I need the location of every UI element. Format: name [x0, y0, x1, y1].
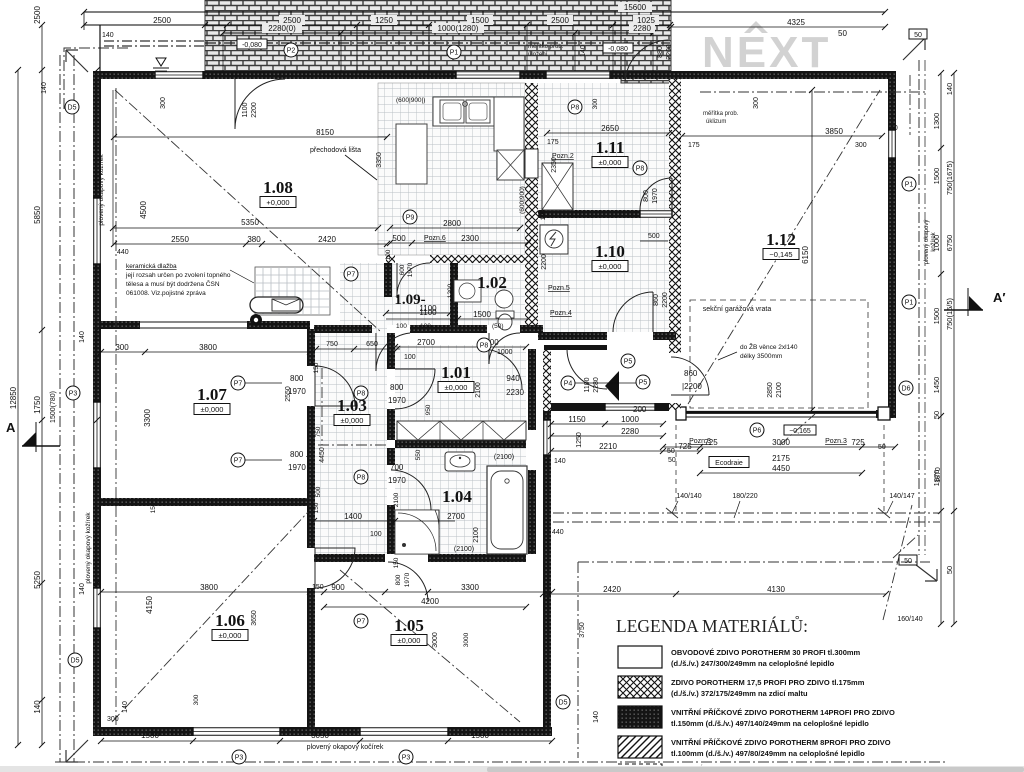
- svg-text:3750: 3750: [579, 622, 586, 638]
- svg-text:1200: 1200: [447, 283, 454, 298]
- svg-text:3300: 3300: [143, 409, 152, 427]
- svg-text:P3: P3: [235, 754, 244, 761]
- svg-text:725: 725: [851, 438, 865, 447]
- svg-text:140/140: 140/140: [676, 493, 701, 500]
- svg-text:50: 50: [914, 32, 922, 39]
- svg-text:2280(0): 2280(0): [268, 24, 296, 33]
- svg-text:1.02: 1.02: [477, 273, 507, 292]
- svg-text:P5: P5: [624, 358, 633, 365]
- svg-text:1000: 1000: [932, 235, 941, 252]
- svg-text:1000(1280): 1000(1280): [438, 24, 479, 33]
- svg-text:50: 50: [667, 448, 675, 455]
- svg-text:měřítka prob.: měřítka prob.: [703, 111, 739, 117]
- svg-text:1100: 1100: [242, 102, 249, 117]
- svg-text:Pozn.3: Pozn.3: [825, 438, 847, 445]
- svg-text:D5: D5: [71, 657, 80, 664]
- svg-text:2100: 2100: [473, 527, 480, 543]
- svg-text:3800: 3800: [200, 583, 218, 592]
- svg-text:1100: 1100: [584, 377, 591, 392]
- svg-text:tl.150mm (d./š./v.) 497/140/24: tl.150mm (d./š./v.) 497/140/249mm na cel…: [671, 719, 869, 728]
- svg-text:2175: 2175: [772, 454, 790, 463]
- svg-text:800: 800: [290, 374, 304, 383]
- svg-text:±0,000: ±0,000: [445, 383, 468, 392]
- svg-text:4500: 4500: [139, 201, 148, 219]
- svg-text:140: 140: [79, 583, 86, 595]
- svg-text:(600|900|): (600|900|): [396, 97, 425, 104]
- svg-text:100: 100: [385, 249, 392, 260]
- svg-text:2850: 2850: [767, 382, 774, 398]
- svg-text:1500: 1500: [471, 731, 489, 740]
- svg-text:A′: A′: [993, 290, 1006, 305]
- svg-text:140: 140: [79, 331, 86, 343]
- svg-text:P8: P8: [357, 390, 366, 397]
- svg-text:2300: 2300: [461, 234, 479, 243]
- svg-text:1.04: 1.04: [442, 487, 472, 506]
- svg-text:P7: P7: [347, 271, 356, 278]
- svg-text:±0,000: ±0,000: [599, 262, 622, 271]
- svg-text:940: 940: [506, 374, 520, 383]
- svg-text:1000: 1000: [497, 349, 513, 356]
- svg-text:2550: 2550: [171, 235, 189, 244]
- svg-text:délky 3500mm: délky 3500mm: [740, 353, 782, 360]
- svg-text:440: 440: [552, 529, 564, 536]
- svg-text:6150: 6150: [801, 246, 810, 264]
- svg-text:3800: 3800: [199, 343, 217, 352]
- svg-text:|2200: |2200: [682, 382, 702, 391]
- svg-text:(d./š./v.) 372/175/249mm na zd: (d./š./v.) 372/175/249mm na zdicí maltu: [671, 689, 808, 698]
- svg-text:1970: 1970: [404, 572, 411, 587]
- svg-text:přechodová lišta: přechodová lišta: [310, 147, 361, 154]
- svg-text:2200: 2200: [662, 292, 669, 308]
- svg-text:1000: 1000: [621, 415, 639, 424]
- svg-text:50: 50: [932, 411, 941, 419]
- svg-text:3000: 3000: [772, 438, 790, 447]
- svg-text:3650: 3650: [251, 610, 258, 626]
- svg-text:Pozn.5: Pozn.5: [548, 285, 570, 292]
- svg-text:1100: 1100: [419, 304, 437, 313]
- svg-text:−0,165: −0,165: [789, 428, 811, 435]
- svg-text:140: 140: [122, 701, 129, 713]
- svg-text:3350: 3350: [376, 152, 383, 168]
- svg-text:2500: 2500: [153, 16, 171, 25]
- svg-text:061008. Viz.pojistné zpráva: 061008. Viz.pojistné zpráva: [126, 290, 206, 297]
- svg-text:860: 860: [653, 294, 660, 306]
- svg-text:15600: 15600: [624, 3, 647, 12]
- svg-text:5350: 5350: [241, 218, 259, 227]
- svg-text:50: 50: [668, 457, 676, 464]
- svg-text:300: 300: [193, 694, 200, 705]
- svg-text:2700: 2700: [447, 512, 465, 521]
- svg-text:140: 140: [593, 711, 600, 723]
- svg-text:1400: 1400: [344, 512, 362, 521]
- svg-text:750: 750: [315, 426, 322, 437]
- svg-text:±0,000: ±0,000: [341, 416, 364, 425]
- svg-text:D6: D6: [902, 385, 911, 392]
- svg-text:12850: 12850: [9, 386, 18, 409]
- svg-text:6750: 6750: [945, 235, 954, 252]
- svg-text:600: 600: [399, 264, 406, 275]
- svg-text:1250: 1250: [576, 432, 583, 448]
- svg-text:NEXT: NEXT: [702, 28, 831, 77]
- svg-text:1970: 1970: [652, 188, 659, 204]
- svg-text:-0,080: -0,080: [608, 46, 628, 53]
- svg-text:VNITŘNÍ PŘÍČKOVÉ ZDIVO POROTHE: VNITŘNÍ PŘÍČKOVÉ ZDIVO POROTHERM 8PROFI …: [671, 738, 891, 747]
- svg-text:VNITŘNÍ PŘÍČKOVÉ ZDIVO POROTHE: VNITŘNÍ PŘÍČKOVÉ ZDIVO POROTHERM 14PROFI…: [671, 708, 895, 717]
- svg-text:P8: P8: [480, 342, 489, 349]
- svg-text:100: 100: [396, 323, 407, 330]
- svg-text:2280: 2280: [621, 427, 639, 436]
- svg-text:800 .: 800 .: [290, 450, 308, 459]
- svg-text:4150: 4150: [145, 596, 154, 614]
- svg-text:+0,000: +0,000: [266, 198, 289, 207]
- svg-text:1970: 1970: [388, 396, 406, 405]
- svg-text:OBVODOVÉ ZDIVO POROTHERM 30 PR: OBVODOVÉ ZDIVO POROTHERM 30 PROFI tl.300…: [671, 648, 861, 657]
- svg-text:950: 950: [425, 404, 432, 415]
- svg-text:1.01: 1.01: [441, 363, 471, 382]
- svg-text:A: A: [6, 420, 16, 435]
- svg-text:100: 100: [404, 354, 416, 361]
- svg-text:úklizum: úklizum: [706, 119, 726, 125]
- svg-text:1300: 1300: [932, 113, 941, 130]
- svg-text:175: 175: [688, 142, 700, 149]
- svg-text:300: 300: [592, 98, 599, 109]
- svg-text:P7: P7: [234, 380, 243, 387]
- svg-text:150: 150: [393, 557, 400, 568]
- svg-text:(600|900): (600|900): [519, 186, 526, 214]
- svg-text:2500: 2500: [551, 16, 569, 25]
- svg-text:2280: 2280: [593, 377, 600, 393]
- svg-text:175: 175: [547, 139, 559, 146]
- svg-text:4130: 4130: [767, 585, 785, 594]
- svg-text:1250: 1250: [375, 16, 393, 25]
- svg-text:P8: P8: [636, 165, 645, 172]
- svg-text:1500: 1500: [932, 308, 941, 325]
- svg-text:1.05: 1.05: [394, 616, 424, 635]
- svg-text:140: 140: [102, 32, 114, 39]
- svg-text:300: 300: [753, 97, 760, 109]
- svg-text:100: 100: [420, 323, 431, 330]
- svg-text:300: 300: [115, 343, 129, 352]
- svg-text:1970: 1970: [288, 463, 306, 472]
- svg-text:50: 50: [878, 444, 886, 451]
- svg-text:750: 750: [326, 341, 338, 348]
- svg-text:50: 50: [904, 558, 912, 565]
- svg-text:3300: 3300: [461, 583, 479, 592]
- svg-text:1.12: 1.12: [766, 230, 796, 249]
- svg-text:860: 860: [684, 369, 698, 378]
- svg-text:měřítko prob.: měřítko prob.: [528, 44, 564, 50]
- svg-text:±0,000: ±0,000: [219, 631, 242, 640]
- svg-text:její rozsah určen po zvolení t: její rozsah určen po zvolení topného: [125, 272, 231, 279]
- svg-text:500: 500: [648, 233, 660, 240]
- svg-text:3050: 3050: [311, 731, 329, 740]
- svg-text:(d./š./v.) 247/300/249mm na ce: (d./š./v.) 247/300/249mm na celoplošné l…: [671, 659, 835, 668]
- svg-text:800: 800: [643, 190, 650, 202]
- svg-text:P1: P1: [905, 299, 914, 306]
- svg-text:1500: 1500: [141, 731, 159, 740]
- svg-text:2420: 2420: [603, 585, 621, 594]
- svg-text:800: 800: [395, 574, 402, 585]
- svg-text:500: 500: [392, 234, 406, 243]
- svg-text:4450: 4450: [772, 464, 790, 473]
- svg-text:P3: P3: [402, 754, 411, 761]
- svg-text:300: 300: [855, 142, 867, 149]
- svg-text:2420: 2420: [318, 235, 336, 244]
- svg-text:1970: 1970: [388, 476, 406, 485]
- svg-text:±0,000: ±0,000: [201, 405, 224, 414]
- svg-text:keramická dlažba: keramická dlažba: [126, 263, 177, 270]
- svg-text:2650: 2650: [601, 124, 619, 133]
- svg-text:750(1675): 750(1675): [945, 160, 954, 195]
- svg-text:1970: 1970: [407, 262, 414, 277]
- svg-text:Pozn.4: Pozn.4: [550, 310, 572, 317]
- svg-text:4200: 4200: [421, 597, 439, 606]
- svg-text:5850: 5850: [33, 206, 42, 224]
- svg-text:do ŽB věnce 2xl140: do ŽB věnce 2xl140: [740, 342, 798, 351]
- svg-text:160/140: 160/140: [897, 616, 922, 623]
- svg-text:50: 50: [945, 566, 954, 574]
- svg-text:D5: D5: [68, 104, 77, 111]
- svg-text:P7: P7: [357, 618, 366, 625]
- svg-text:1500: 1500: [473, 310, 491, 319]
- svg-text:140/147: 140/147: [889, 493, 914, 500]
- svg-text:4325: 4325: [787, 18, 805, 27]
- svg-text:5250: 5250: [33, 571, 42, 589]
- svg-text:140: 140: [580, 45, 587, 57]
- svg-text:200: 200: [633, 405, 647, 414]
- svg-text:D5: D5: [559, 699, 568, 706]
- svg-text:tl.100mm (d./š./v.) 497/80/249: tl.100mm (d./š./v.) 497/80/249mm na celo…: [671, 749, 865, 758]
- svg-text:140: 140: [41, 82, 48, 94]
- svg-text:Pozn.3: Pozn.3: [689, 438, 711, 445]
- svg-text:300: 300: [107, 716, 119, 723]
- svg-text:2700: 2700: [417, 338, 435, 347]
- svg-text:150: 150: [312, 584, 324, 591]
- svg-text:-0,080: -0,080: [242, 42, 262, 49]
- svg-text:2230: 2230: [506, 388, 524, 397]
- svg-text:1750: 1750: [33, 396, 42, 414]
- svg-text:sekční garážová vrata: sekční garážová vrata: [703, 306, 772, 313]
- svg-text:Pozn.2: Pozn.2: [552, 153, 574, 160]
- svg-text:2100: 2100: [776, 382, 783, 398]
- svg-text:(50): (50): [492, 323, 504, 330]
- svg-text:440: 440: [117, 249, 129, 256]
- svg-text:1.10: 1.10: [595, 242, 625, 261]
- svg-text:50: 50: [890, 125, 898, 132]
- svg-text:2800: 2800: [443, 219, 461, 228]
- svg-text:P4: P4: [564, 380, 573, 387]
- svg-text:1.06: 1.06: [215, 611, 245, 630]
- svg-text:2200: 2200: [666, 44, 673, 60]
- svg-text:P1: P1: [450, 49, 459, 56]
- svg-text:P2: P2: [287, 47, 296, 54]
- svg-text:P5: P5: [639, 379, 648, 386]
- svg-text:plovený okapový: plovený okapový: [924, 220, 930, 265]
- svg-text:P6: P6: [753, 427, 762, 434]
- svg-text:750(16/5): 750(16/5): [945, 297, 954, 330]
- svg-text:150: 150: [313, 362, 320, 373]
- svg-text:100: 100: [540, 209, 547, 220]
- svg-text:LEGENDA MATERIÁLŮ:: LEGENDA MATERIÁLŮ:: [616, 616, 808, 636]
- svg-text:2280: 2280: [633, 24, 651, 33]
- svg-text:Pozn.6: Pozn.6: [424, 235, 446, 242]
- svg-text:1500: 1500: [932, 168, 941, 185]
- svg-text:3000: 3000: [463, 632, 470, 647]
- svg-text:1150: 1150: [568, 415, 586, 424]
- svg-text:plovený okapový kočírek: plovený okapový kočírek: [307, 744, 384, 751]
- svg-text:1.11: 1.11: [596, 138, 625, 157]
- svg-text:3000: 3000: [432, 632, 439, 648]
- svg-text:140: 140: [33, 700, 42, 714]
- svg-text:2100: 2100: [393, 492, 400, 507]
- svg-text:2200: 2200: [541, 254, 548, 270]
- svg-text:1870: 1870: [935, 467, 942, 483]
- svg-text:(2100): (2100): [494, 454, 514, 461]
- svg-text:140: 140: [554, 458, 566, 465]
- svg-text:300: 300: [160, 97, 167, 109]
- svg-text:2100: 2100: [475, 382, 482, 398]
- svg-text:180/220: 180/220: [732, 493, 757, 500]
- svg-text:380: 380: [247, 235, 261, 244]
- svg-text:150: 150: [150, 502, 157, 513]
- svg-text:2200: 2200: [251, 102, 258, 118]
- svg-text:ZDIVO POROTHERM 17,5 PROFI PRO: ZDIVO POROTHERM 17,5 PROFI PRO ZDIVO tl.…: [671, 678, 865, 687]
- svg-text:500: 500: [315, 486, 322, 497]
- svg-text:1500(780): 1500(780): [50, 391, 57, 423]
- svg-text:±0,000: ±0,000: [599, 158, 622, 167]
- svg-text:plovený okapový kožírek: plovený okapový kožírek: [98, 154, 105, 226]
- svg-text:1.08: 1.08: [263, 178, 293, 197]
- svg-text:P8: P8: [357, 474, 366, 481]
- svg-text:1.07: 1.07: [197, 385, 227, 404]
- svg-text:150: 150: [313, 502, 320, 513]
- svg-text:P3: P3: [69, 390, 78, 397]
- svg-text:P8: P8: [571, 104, 580, 111]
- svg-text:P1: P1: [905, 181, 914, 188]
- svg-text:650: 650: [366, 341, 378, 348]
- svg-text:800: 800: [390, 383, 404, 392]
- svg-text:plovený okapový kožírek: plovený okapový kožírek: [85, 512, 92, 584]
- svg-text:1450: 1450: [932, 377, 941, 394]
- svg-text:700: 700: [390, 463, 404, 472]
- svg-text:P7: P7: [234, 457, 243, 464]
- svg-text:2210: 2210: [599, 442, 617, 451]
- svg-text:1970: 1970: [288, 387, 306, 396]
- svg-text:50: 50: [838, 29, 847, 38]
- svg-text:900: 900: [331, 583, 345, 592]
- svg-text:3850: 3850: [825, 127, 843, 136]
- svg-text:P9: P9: [406, 214, 415, 221]
- svg-text:8150: 8150: [316, 128, 334, 137]
- svg-text:2500: 2500: [33, 6, 42, 24]
- svg-text:tělesa a musí být dodržena ČSN: tělesa a musí být dodržena ČSN: [126, 279, 220, 288]
- svg-text:úložení: úložení: [528, 52, 548, 58]
- svg-text:550: 550: [415, 449, 422, 460]
- svg-text:4450: 4450: [319, 447, 326, 463]
- svg-text:140: 140: [945, 83, 954, 96]
- svg-text:100: 100: [370, 531, 382, 538]
- svg-text:(2100): (2100): [454, 546, 474, 553]
- svg-text:880: 880: [657, 46, 664, 58]
- svg-text:−0,145: −0,145: [769, 250, 792, 259]
- svg-text:±0,000: ±0,000: [398, 636, 421, 645]
- svg-text:Ecodraie: Ecodraie: [715, 460, 743, 467]
